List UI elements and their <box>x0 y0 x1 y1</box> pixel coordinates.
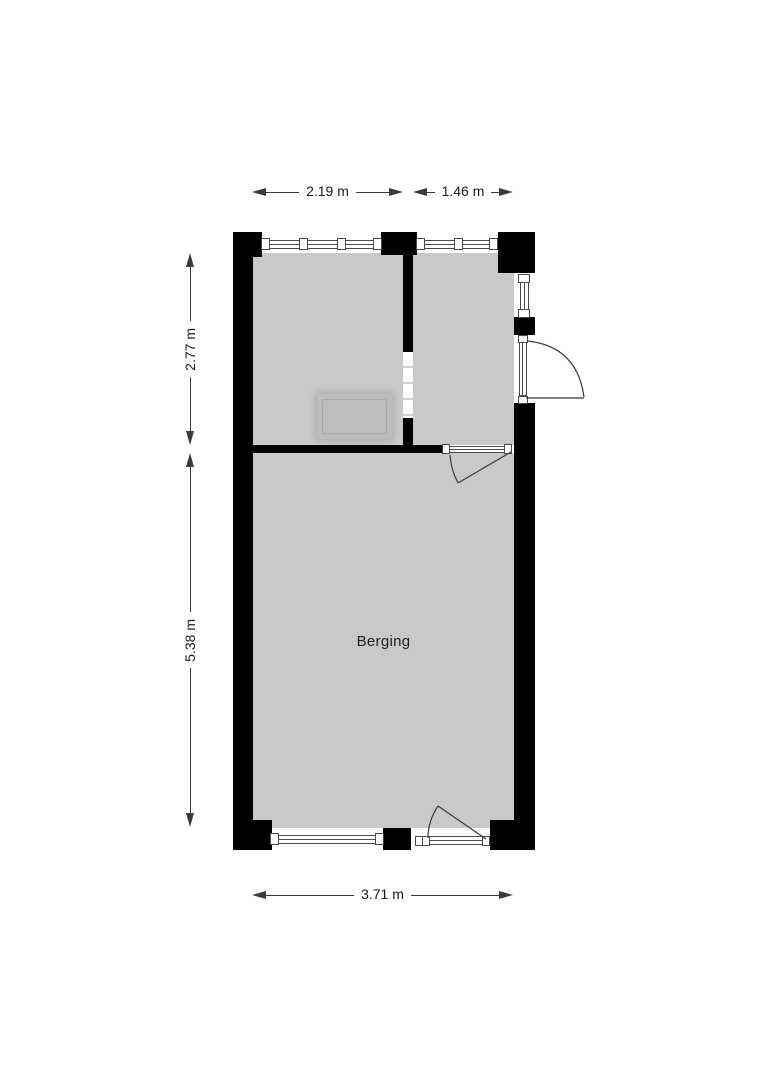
corner-block-bottom-right <box>490 820 535 850</box>
window-post <box>337 238 346 250</box>
dimension-top-right: 1.46 m <box>413 184 513 200</box>
arrow-left-icon <box>252 891 266 899</box>
arrow-down-icon <box>186 431 194 445</box>
arrow-left-icon <box>413 188 427 196</box>
dim-line <box>266 895 354 896</box>
partition-wall-opening <box>403 352 413 418</box>
wall-bottom-segment <box>383 828 411 850</box>
dim-line <box>356 192 389 193</box>
arrow-up-icon <box>186 453 194 467</box>
arrow-right-icon <box>389 188 403 196</box>
dim-line <box>190 668 191 813</box>
dimension-label: 1.46 m <box>435 183 492 199</box>
dimension-label: 2.19 m <box>299 183 356 199</box>
room-label-berging: Berging <box>253 633 514 650</box>
dimension-label: 5.38 m <box>182 612 198 669</box>
dim-line <box>491 192 499 193</box>
arrow-up-icon <box>186 253 194 267</box>
window-post <box>518 274 530 283</box>
door-slab <box>429 836 483 845</box>
dimension-top-left: 2.19 m <box>252 184 403 200</box>
window-post <box>261 238 270 250</box>
dimension-label: 2.77 m <box>182 321 198 378</box>
door-swing-arc <box>527 341 584 397</box>
door-frame-post <box>482 836 490 846</box>
door-slab <box>519 342 527 396</box>
window-post <box>375 833 384 845</box>
door-slab <box>449 446 505 453</box>
arrow-left-icon <box>252 188 266 196</box>
window-post <box>270 833 279 845</box>
wall-top-pillar <box>381 232 417 255</box>
dim-line <box>427 192 435 193</box>
corner-block-top-left <box>233 232 262 257</box>
window-post <box>299 238 308 250</box>
dim-line <box>190 267 191 321</box>
arrow-down-icon <box>186 813 194 827</box>
window-glazing <box>263 240 381 249</box>
dimension-label: 3.71 m <box>354 886 411 902</box>
dim-line <box>266 192 299 193</box>
window-post <box>416 238 425 250</box>
floorplan-canvas: 2.19 m 1.46 m 2.77 m 5.38 m 3.71 m <box>0 0 768 1086</box>
window-post <box>454 238 463 250</box>
window-post <box>518 309 530 318</box>
dimension-side-upper: 2.77 m <box>182 253 198 445</box>
wall-right-segment <box>514 403 535 850</box>
door-frame-post <box>504 444 512 454</box>
room-top-right-floor <box>413 253 514 445</box>
door-frame-post <box>518 396 528 404</box>
dimension-bottom: 3.71 m <box>252 887 513 903</box>
wall-right-segment <box>514 317 535 335</box>
wall-left <box>233 232 253 850</box>
corner-block-top-right <box>498 232 535 273</box>
furniture-table <box>317 394 392 439</box>
arrow-right-icon <box>499 891 513 899</box>
window-post <box>373 238 382 250</box>
arrow-right-icon <box>499 188 513 196</box>
corner-block-bottom-left <box>233 820 272 850</box>
dimension-side-lower: 5.38 m <box>182 453 198 827</box>
window-post <box>489 238 498 250</box>
window-glazing <box>272 835 383 844</box>
interior-wall-horizontal <box>243 445 442 453</box>
dim-line <box>411 895 499 896</box>
dim-line <box>190 377 191 431</box>
dim-line <box>190 467 191 612</box>
